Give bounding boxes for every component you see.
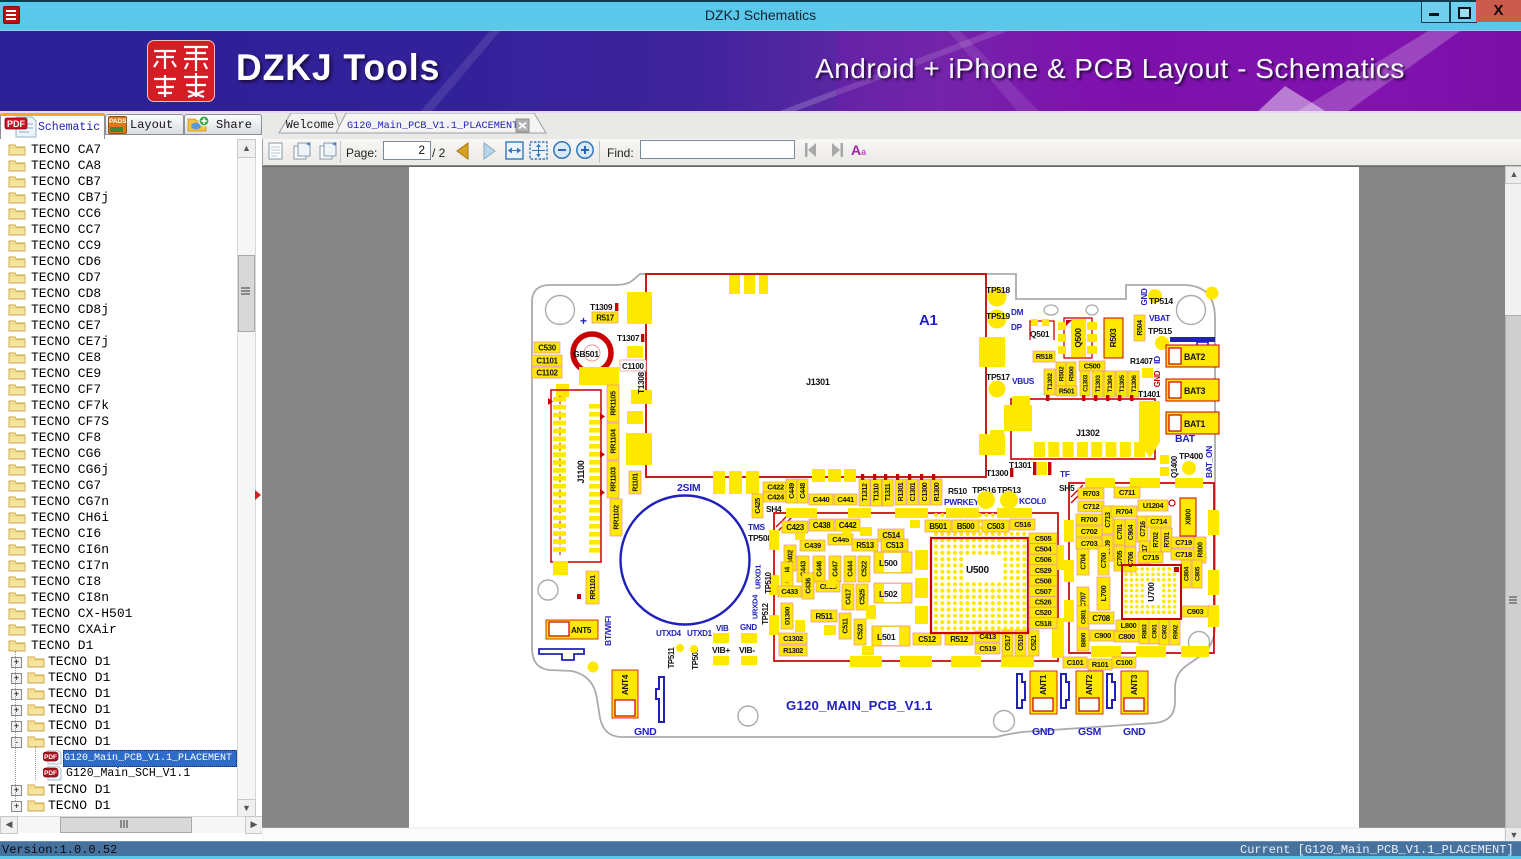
svg-text:C715: C715 xyxy=(1142,553,1160,562)
svg-text:C901: C901 xyxy=(1151,624,1158,639)
svg-text:C440: C440 xyxy=(813,495,830,504)
svg-text:ID: ID xyxy=(1152,356,1162,364)
svg-text:C512: C512 xyxy=(918,635,936,644)
svg-text:B500: B500 xyxy=(957,522,975,531)
svg-text:C714: C714 xyxy=(1150,517,1168,526)
svg-text:R101: R101 xyxy=(1092,660,1110,669)
svg-text:RR1101: RR1101 xyxy=(588,575,597,600)
svg-text:C447: C447 xyxy=(831,561,840,577)
svg-text:C433: C433 xyxy=(781,587,798,596)
svg-text:UTXD4: UTXD4 xyxy=(656,629,682,638)
svg-text:VIB+: VIB+ xyxy=(712,645,730,655)
svg-text:C1101: C1101 xyxy=(536,356,558,365)
svg-text:R500: R500 xyxy=(1068,366,1075,381)
svg-text:SH4: SH4 xyxy=(766,504,782,514)
svg-text:C904: C904 xyxy=(1128,524,1135,540)
svg-text:C529: C529 xyxy=(1035,566,1052,575)
svg-text:RR1103: RR1103 xyxy=(609,467,618,492)
svg-text:R803: R803 xyxy=(1141,624,1148,639)
svg-text:ANT4: ANT4 xyxy=(621,674,630,695)
svg-text:TP512: TP512 xyxy=(761,602,770,624)
svg-text:C518: C518 xyxy=(1035,619,1052,628)
svg-text:GB501: GB501 xyxy=(573,349,599,359)
svg-text:C700: C700 xyxy=(1101,552,1108,568)
svg-text:URXD1: URXD1 xyxy=(754,564,763,589)
svg-text:RR1104: RR1104 xyxy=(609,428,618,454)
svg-text:BAT: BAT xyxy=(1175,433,1196,445)
svg-text:C444: C444 xyxy=(846,561,855,577)
svg-text:VIB-: VIB- xyxy=(739,645,755,655)
svg-text:C500: C500 xyxy=(1084,362,1101,371)
svg-text:GND: GND xyxy=(1140,288,1149,305)
svg-text:R1302: R1302 xyxy=(783,646,803,655)
svg-text:GSM: GSM xyxy=(1078,726,1102,738)
svg-text:TP518: TP518 xyxy=(986,285,1010,295)
svg-text:U700: U700 xyxy=(1146,582,1156,602)
svg-text:Q501: Q501 xyxy=(1030,329,1050,339)
svg-text:C521: C521 xyxy=(1029,635,1038,651)
svg-text:C422: C422 xyxy=(767,483,784,492)
svg-text:C707: C707 xyxy=(1081,592,1088,608)
svg-text:C525: C525 xyxy=(858,589,867,605)
svg-text:DP: DP xyxy=(1011,323,1023,332)
svg-text:C522: C522 xyxy=(860,561,869,577)
svg-text:PWRKEY: PWRKEY xyxy=(944,497,980,507)
svg-text:C526: C526 xyxy=(1035,598,1052,607)
svg-text:T1311: T1311 xyxy=(885,483,892,501)
svg-text:C506: C506 xyxy=(1035,555,1052,564)
svg-text:L500: L500 xyxy=(879,558,898,568)
svg-text:C711: C711 xyxy=(1119,488,1136,497)
svg-text:C702: C702 xyxy=(1081,527,1098,536)
svg-text:SH5: SH5 xyxy=(1059,483,1075,493)
svg-text:T1309: T1309 xyxy=(590,302,613,312)
svg-text:C514: C514 xyxy=(882,531,900,540)
svg-text:TP515: TP515 xyxy=(1148,326,1172,336)
svg-text:T1401: T1401 xyxy=(1138,389,1161,399)
svg-text:C504: C504 xyxy=(1035,545,1053,554)
svg-text:C449: C449 xyxy=(787,483,796,499)
svg-text:R703: R703 xyxy=(1083,489,1100,498)
svg-text:C523: C523 xyxy=(856,624,865,640)
svg-text:C701: C701 xyxy=(1117,524,1124,540)
svg-text:C718: C718 xyxy=(1175,550,1192,559)
svg-text:C805: C805 xyxy=(1194,566,1201,581)
svg-text:C101: C101 xyxy=(1067,658,1085,667)
svg-text:Welcome: Welcome xyxy=(286,119,334,132)
svg-text:X800: X800 xyxy=(1184,509,1193,525)
svg-text:C900: C900 xyxy=(1094,631,1111,640)
svg-text:R517: R517 xyxy=(596,313,614,322)
svg-text:G120_MAIN_PCB_V1.1: G120_MAIN_PCB_V1.1 xyxy=(786,698,933,713)
svg-text:A1: A1 xyxy=(919,312,938,329)
svg-text:GND: GND xyxy=(1123,726,1146,738)
svg-text:R504: R504 xyxy=(1137,320,1144,336)
svg-text:UTXD1: UTXD1 xyxy=(687,629,713,638)
svg-text:R701: R701 xyxy=(1164,532,1171,548)
svg-text:RR1102: RR1102 xyxy=(612,505,621,530)
svg-text:L700: L700 xyxy=(1099,585,1108,601)
svg-text:KCOL0: KCOL0 xyxy=(1019,496,1047,506)
svg-text:T1304: T1304 xyxy=(1107,375,1114,393)
svg-text:C503: C503 xyxy=(987,522,1005,531)
svg-text:L800: L800 xyxy=(1121,621,1137,630)
svg-text:TP400: TP400 xyxy=(1179,451,1203,461)
svg-text:C903: C903 xyxy=(1187,607,1204,616)
svg-text:TP517: TP517 xyxy=(986,372,1010,382)
svg-text:U1204: U1204 xyxy=(1143,501,1165,510)
svg-text:PDF: PDF xyxy=(44,754,57,761)
svg-text:T1300: T1300 xyxy=(986,468,1009,478)
svg-text:R510: R510 xyxy=(948,486,967,496)
svg-text:VBUS: VBUS xyxy=(1012,376,1035,386)
svg-text:R1407: R1407 xyxy=(1130,357,1153,366)
svg-text:TMS: TMS xyxy=(748,522,765,532)
svg-text:C703: C703 xyxy=(1081,539,1098,548)
svg-text:URXD4: URXD4 xyxy=(751,594,760,619)
svg-text:BAT_ON: BAT_ON xyxy=(1204,446,1214,478)
svg-text:R511: R511 xyxy=(815,612,833,621)
svg-text:R902: R902 xyxy=(1172,624,1179,639)
svg-text:C446: C446 xyxy=(815,561,824,577)
svg-text:ANT2: ANT2 xyxy=(1085,674,1094,695)
svg-text:GND: GND xyxy=(1032,726,1055,738)
svg-text:PDF: PDF xyxy=(7,119,26,129)
svg-text:G120_Main_PCB_V1.1_PLACEMENT: G120_Main_PCB_V1.1_PLACEMENT xyxy=(347,120,518,132)
svg-text:C708: C708 xyxy=(1092,614,1110,623)
svg-text:C510: C510 xyxy=(1016,635,1025,651)
svg-text:R1300: R1300 xyxy=(934,482,941,501)
svg-text:R501: R501 xyxy=(1059,387,1075,396)
svg-text:T1312: T1312 xyxy=(862,483,869,501)
svg-text:T1306: T1306 xyxy=(1131,375,1138,393)
svg-text:TP514: TP514 xyxy=(1149,296,1173,306)
svg-text:R1301: R1301 xyxy=(898,482,905,501)
svg-text:C423: C423 xyxy=(786,523,804,532)
svg-text:ANT3: ANT3 xyxy=(1130,674,1139,695)
svg-text:T1307: T1307 xyxy=(617,333,640,343)
svg-text:TP508: TP508 xyxy=(748,533,772,543)
svg-text:T1308: T1308 xyxy=(637,371,646,393)
svg-text:C804: C804 xyxy=(1183,566,1190,581)
svg-text:BAT2: BAT2 xyxy=(1184,352,1206,362)
svg-text:J1100: J1100 xyxy=(576,460,586,483)
svg-text:C519: C519 xyxy=(979,644,996,653)
svg-text:C800: C800 xyxy=(1118,632,1135,641)
svg-text:C902: C902 xyxy=(1161,624,1168,639)
svg-text:C438: C438 xyxy=(813,521,831,530)
svg-text:T1310: T1310 xyxy=(874,483,881,501)
svg-text:U500: U500 xyxy=(966,565,989,576)
svg-text:C516: C516 xyxy=(1014,520,1031,529)
svg-text:R513: R513 xyxy=(856,541,874,550)
svg-text:C530: C530 xyxy=(538,343,556,352)
svg-text:C801: C801 xyxy=(1080,609,1087,624)
svg-text:BT/WIFI: BT/WIFI xyxy=(603,616,613,646)
svg-text:C448: C448 xyxy=(798,483,807,499)
svg-text:Q500: Q500 xyxy=(1073,328,1083,348)
svg-text:VBAT: VBAT xyxy=(1149,313,1171,323)
svg-text:TF: TF xyxy=(1060,469,1070,479)
svg-text:BAT1: BAT1 xyxy=(1184,419,1206,429)
svg-text:R518: R518 xyxy=(1036,352,1053,361)
svg-text:C442: C442 xyxy=(839,521,857,530)
svg-text:TP519: TP519 xyxy=(986,311,1010,321)
svg-text:ANT1: ANT1 xyxy=(1039,674,1048,695)
svg-text:RR1105: RR1105 xyxy=(609,391,618,416)
svg-text:C439: C439 xyxy=(804,541,821,550)
svg-text:R702: R702 xyxy=(1153,532,1160,548)
svg-text:C1301: C1301 xyxy=(910,482,917,501)
svg-text:GND: GND xyxy=(1153,370,1162,387)
svg-text:C511: C511 xyxy=(841,618,850,634)
svg-text:C417: C417 xyxy=(844,589,853,605)
svg-text:VIB: VIB xyxy=(716,624,729,633)
svg-text:T1303: T1303 xyxy=(1095,375,1102,393)
svg-text:T1302: T1302 xyxy=(1047,373,1054,391)
svg-text:T1305: T1305 xyxy=(1119,375,1126,393)
svg-text:R1101: R1101 xyxy=(633,473,640,492)
svg-text:C1302: C1302 xyxy=(783,634,803,643)
svg-text:L501: L501 xyxy=(877,632,896,642)
svg-text:+: + xyxy=(580,314,587,328)
svg-text:C425: C425 xyxy=(753,498,762,514)
svg-text:C1300: C1300 xyxy=(922,482,929,501)
svg-text:GND: GND xyxy=(634,726,657,738)
svg-text:R512: R512 xyxy=(950,635,968,644)
svg-text:Q1400: Q1400 xyxy=(1170,455,1179,478)
svg-text:C507: C507 xyxy=(1035,587,1052,596)
svg-text:2SIM: 2SIM xyxy=(677,482,701,494)
svg-text:C436: C436 xyxy=(804,578,813,594)
svg-text:R503: R503 xyxy=(1108,328,1118,347)
svg-text:B800: B800 xyxy=(1080,632,1087,647)
svg-text:C712: C712 xyxy=(1083,502,1100,511)
svg-text:C424: C424 xyxy=(767,493,785,502)
svg-text:D1300: D1300 xyxy=(784,606,791,625)
svg-text:BAT3: BAT3 xyxy=(1184,386,1206,396)
svg-text:C1303: C1303 xyxy=(1082,374,1089,392)
svg-text:C520: C520 xyxy=(1035,608,1052,617)
svg-text:DM: DM xyxy=(1011,308,1024,317)
svg-text:R700: R700 xyxy=(1081,515,1098,524)
svg-text:C100: C100 xyxy=(1116,658,1133,667)
svg-text:PDF: PDF xyxy=(44,770,57,777)
svg-text:J1301: J1301 xyxy=(806,377,830,387)
svg-text:L502: L502 xyxy=(879,589,898,599)
svg-text:J1302: J1302 xyxy=(1076,428,1100,438)
svg-text:C1100: C1100 xyxy=(622,362,644,371)
svg-text:C441: C441 xyxy=(837,495,855,504)
svg-text:ANT5: ANT5 xyxy=(571,626,592,635)
svg-text:B501: B501 xyxy=(929,522,947,531)
svg-text:TP510: TP510 xyxy=(764,571,773,593)
svg-text:TP511: TP511 xyxy=(667,647,676,669)
svg-text:C517: C517 xyxy=(1003,635,1012,651)
svg-text:C513: C513 xyxy=(886,541,904,550)
svg-text:C704: C704 xyxy=(1081,554,1088,570)
svg-text:R704: R704 xyxy=(1116,507,1134,516)
svg-text:C508: C508 xyxy=(1035,576,1052,585)
svg-text:C1102: C1102 xyxy=(536,368,558,377)
svg-text:R800: R800 xyxy=(1198,542,1205,558)
svg-text:C505: C505 xyxy=(1035,534,1053,543)
svg-text:C705: C705 xyxy=(1117,550,1124,566)
svg-text:C719: C719 xyxy=(1175,538,1192,547)
svg-text:R502: R502 xyxy=(1058,366,1065,381)
svg-text:GND: GND xyxy=(740,623,757,632)
